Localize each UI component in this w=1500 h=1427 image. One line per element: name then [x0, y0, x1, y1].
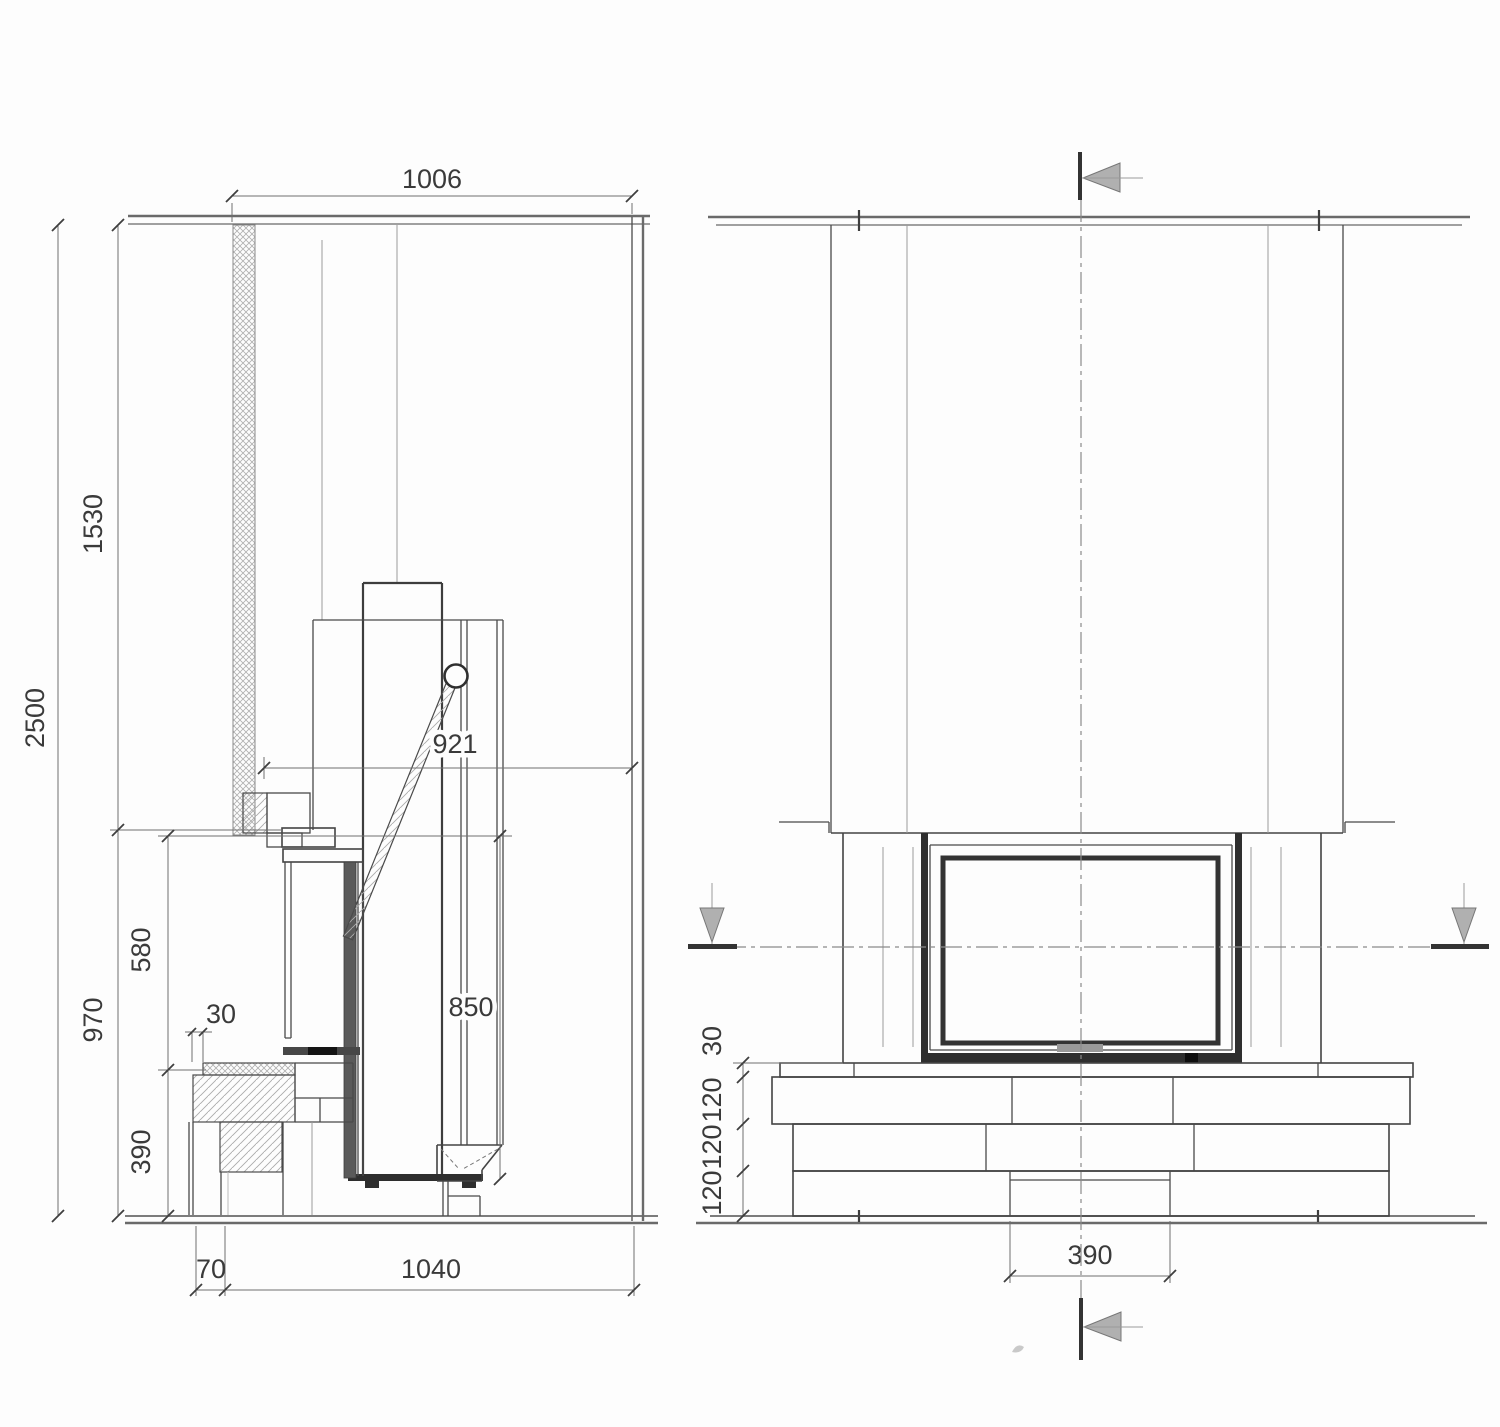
- dim-label-120-c: 120: [697, 1170, 727, 1215]
- section-marker-side-left: [688, 883, 737, 949]
- bench-masonry: [189, 1063, 295, 1215]
- side-columns: [843, 833, 1321, 1063]
- drawing-page: 1006 2500 1530 970 580 390 30: [0, 0, 1500, 1427]
- dim-label-390-side: 390: [126, 1129, 156, 1174]
- firebox-body: [313, 620, 503, 1188]
- dim-label-850: 850: [448, 992, 493, 1022]
- dim-total-height: 2500: [20, 219, 64, 1222]
- dim-chain-firebox-bench: 580 390: [126, 830, 512, 1222]
- dim-wall-gap: 30: [185, 999, 236, 1062]
- front-elevation-view: 30 120 120 120 390: [688, 152, 1489, 1360]
- dim-label-30-front: 30: [697, 1026, 727, 1056]
- dim-label-1040: 1040: [401, 1254, 461, 1284]
- wall-insulation-strip: [233, 225, 255, 835]
- door-latch: [1185, 1053, 1198, 1063]
- dim-base-widths: 70 1040: [190, 1226, 640, 1296]
- flue-outlet-funnel: [437, 1145, 502, 1216]
- dim-label-970: 970: [78, 997, 108, 1042]
- section-marker-top: [1078, 152, 1143, 200]
- dim-label-1006: 1006: [402, 164, 462, 194]
- wall-right: [632, 217, 643, 1221]
- section-arrow-down-icon: [1452, 908, 1476, 942]
- dim-label-1530: 1530: [78, 494, 108, 554]
- dim-label-921: 921: [432, 729, 477, 759]
- door-handle: [1057, 1044, 1103, 1052]
- print-artifact: [1012, 1345, 1024, 1352]
- section-marker-side-right: [1431, 883, 1489, 949]
- section-marker-bottom: [1079, 1298, 1143, 1360]
- stove-door-section: [282, 828, 363, 1178]
- section-arrow-down-icon: [700, 908, 724, 942]
- dim-wall-opening-width: 1006: [226, 164, 638, 222]
- ceiling-line: [128, 216, 650, 224]
- side-section-view: 1006 2500 1530 970 580 390 30: [20, 164, 658, 1296]
- hood-cladding: [779, 225, 1395, 833]
- dim-flue-width: 390: [1004, 1221, 1176, 1283]
- ceiling-line-front: [708, 210, 1470, 231]
- dim-label-70: 70: [196, 1254, 226, 1284]
- dim-label-120-b: 120: [697, 1124, 727, 1169]
- dim-label-580: 580: [126, 927, 156, 972]
- floor-line: [125, 1216, 658, 1223]
- technical-drawing: 1006 2500 1530 970 580 390 30: [0, 0, 1500, 1427]
- wall-bracket: [243, 793, 310, 847]
- rod-knob: [445, 665, 468, 688]
- dim-label-30-side: 30: [206, 999, 236, 1029]
- dim-label-120-a: 120: [697, 1077, 727, 1122]
- dim-label-2500: 2500: [20, 688, 50, 748]
- hearth-plinth: [772, 1063, 1413, 1216]
- dim-depth-921: 921: [258, 729, 638, 779]
- dim-label-390-front: 390: [1067, 1240, 1112, 1270]
